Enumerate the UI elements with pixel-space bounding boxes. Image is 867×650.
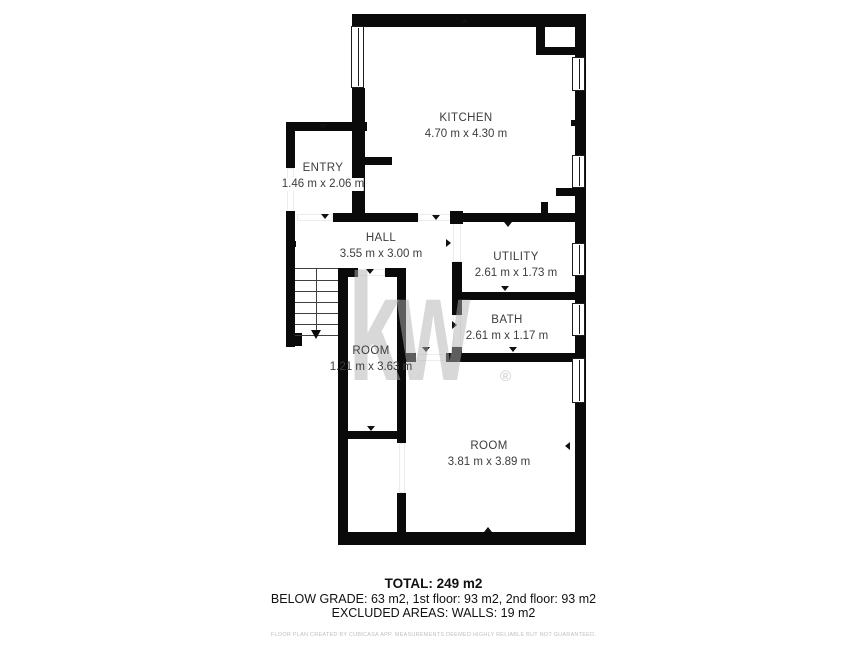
door-opening [453, 222, 461, 262]
room-label-utility: UTILITY 2.61 m x 1.73 m [475, 251, 557, 280]
room-label-room-large: ROOM 3.81 m x 3.89 m [448, 440, 530, 469]
wall-segment [338, 431, 400, 439]
room-name: KITCHEN [425, 112, 507, 125]
room-dimensions: 3.55 m x 3.00 m [340, 248, 422, 261]
wall-segment [452, 292, 578, 300]
area-breakdown-text: BELOW GRADE: 63 m2, 1st floor: 93 m2, 2n… [0, 592, 867, 606]
stair-walk-line [316, 268, 317, 330]
room-dimensions: 4.70 m x 4.30 m [425, 128, 507, 141]
excluded-areas-text: EXCLUDED AREAS: WALLS: 19 m2 [0, 606, 867, 620]
door-arrow [484, 527, 492, 532]
room-dimensions: 1.46 m x 2.06 m [282, 178, 364, 191]
window-pane-line [358, 28, 359, 86]
window-pane-line [579, 305, 580, 334]
wall-segment [536, 47, 578, 55]
room-name: BATH [466, 314, 548, 327]
door-arrow [461, 18, 469, 23]
floorplan-image: kw ® KITCHEN 4.70 m x 4.30 m ENTRY 1.46 … [0, 0, 867, 650]
door-opening [399, 443, 405, 493]
room-name: ENTRY [282, 162, 364, 175]
wall-segment [446, 353, 578, 362]
window [572, 243, 585, 276]
door-arrow [319, 124, 327, 129]
door-arrow [367, 426, 375, 431]
door-arrow [452, 321, 457, 329]
window-pane-line [579, 245, 580, 274]
door-arrow [565, 442, 570, 450]
door-arrow [366, 269, 374, 274]
window [572, 155, 585, 188]
door-arrow [321, 214, 329, 219]
wall-segment [291, 241, 296, 247]
window [572, 358, 585, 403]
window [572, 303, 585, 336]
floor-plan [0, 0, 867, 650]
wall-segment [452, 262, 462, 315]
room-name: UTILITY [475, 251, 557, 264]
window-pane-line [579, 59, 580, 89]
room-dimensions: 2.61 m x 1.73 m [475, 267, 557, 280]
room-label-kitchen: KITCHEN 4.70 m x 4.30 m [425, 112, 507, 141]
room-label-bath: BATH 2.61 m x 1.17 m [466, 314, 548, 343]
wall-segment [338, 532, 586, 545]
door-arrow [432, 215, 440, 220]
door-arrow [504, 222, 512, 227]
room-dimensions: 3.81 m x 3.89 m [448, 456, 530, 469]
room-dimensions: 2.61 m x 1.17 m [466, 330, 548, 343]
wall-segment [338, 268, 348, 545]
stair-down-arrow [311, 330, 321, 339]
door-arrow [509, 347, 517, 352]
wall-segment [450, 211, 463, 224]
wall-segment [571, 120, 576, 126]
door-opening [417, 354, 446, 361]
door-arrow [422, 347, 430, 352]
room-name: HALL [340, 232, 422, 245]
wall-segment [556, 188, 578, 196]
room-label-entry: ENTRY 1.46 m x 2.06 m [282, 162, 364, 191]
wall-segment [541, 202, 548, 222]
room-name: ROOM [448, 440, 530, 453]
window [351, 26, 364, 88]
wall-segment [286, 211, 295, 347]
wall-segment [352, 88, 365, 222]
wall-segment [352, 14, 586, 27]
summary-footer: TOTAL: 249 m2 BELOW GRADE: 63 m2, 1st fl… [0, 576, 867, 638]
wall-segment [333, 213, 418, 222]
wall-segment [452, 213, 578, 222]
room-label-room-small: ROOM 1.21 m x 3.63 m [330, 345, 412, 374]
wall-segment [397, 493, 406, 532]
disclaimer-text: FLOOR PLAN CREATED BY CUBICASA APP. MEAS… [0, 632, 867, 638]
room-dimensions: 1.21 m x 3.63 m [330, 361, 412, 374]
room-name: ROOM [330, 345, 412, 358]
wall-segment [338, 268, 358, 277]
window-pane-line [579, 157, 580, 186]
total-area-text: TOTAL: 249 m2 [0, 576, 867, 591]
door-arrow [501, 286, 509, 291]
door-opening [453, 315, 461, 347]
window [572, 57, 585, 91]
room-label-hall: HALL 3.55 m x 3.00 m [340, 232, 422, 261]
window-pane-line [579, 360, 580, 401]
wall-segment [287, 122, 367, 131]
wall-segment [362, 157, 392, 165]
door-arrow [446, 239, 451, 247]
wall-segment [575, 14, 586, 545]
